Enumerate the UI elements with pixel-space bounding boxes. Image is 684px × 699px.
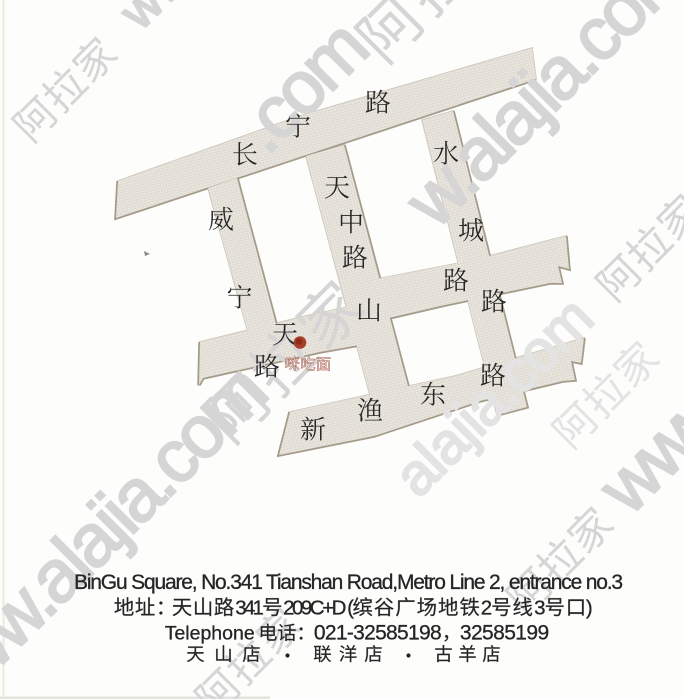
svg-text:021-32585198: 021-32585198	[314, 622, 441, 645]
svg-text:209C+D (: 209C+D (	[283, 597, 354, 620]
svg-text:32585199: 32585199	[460, 622, 549, 645]
svg-text:): )	[586, 597, 593, 620]
svg-text:Telephone: Telephone	[165, 623, 255, 645]
svg-text:BinGu Square, No.341 Tianshan: BinGu Square, No.341 Tianshan Road,Metro…	[74, 571, 622, 594]
svg-text:3: 3	[534, 597, 545, 620]
svg-text:341: 341	[235, 597, 263, 620]
svg-text:2: 2	[481, 597, 492, 620]
